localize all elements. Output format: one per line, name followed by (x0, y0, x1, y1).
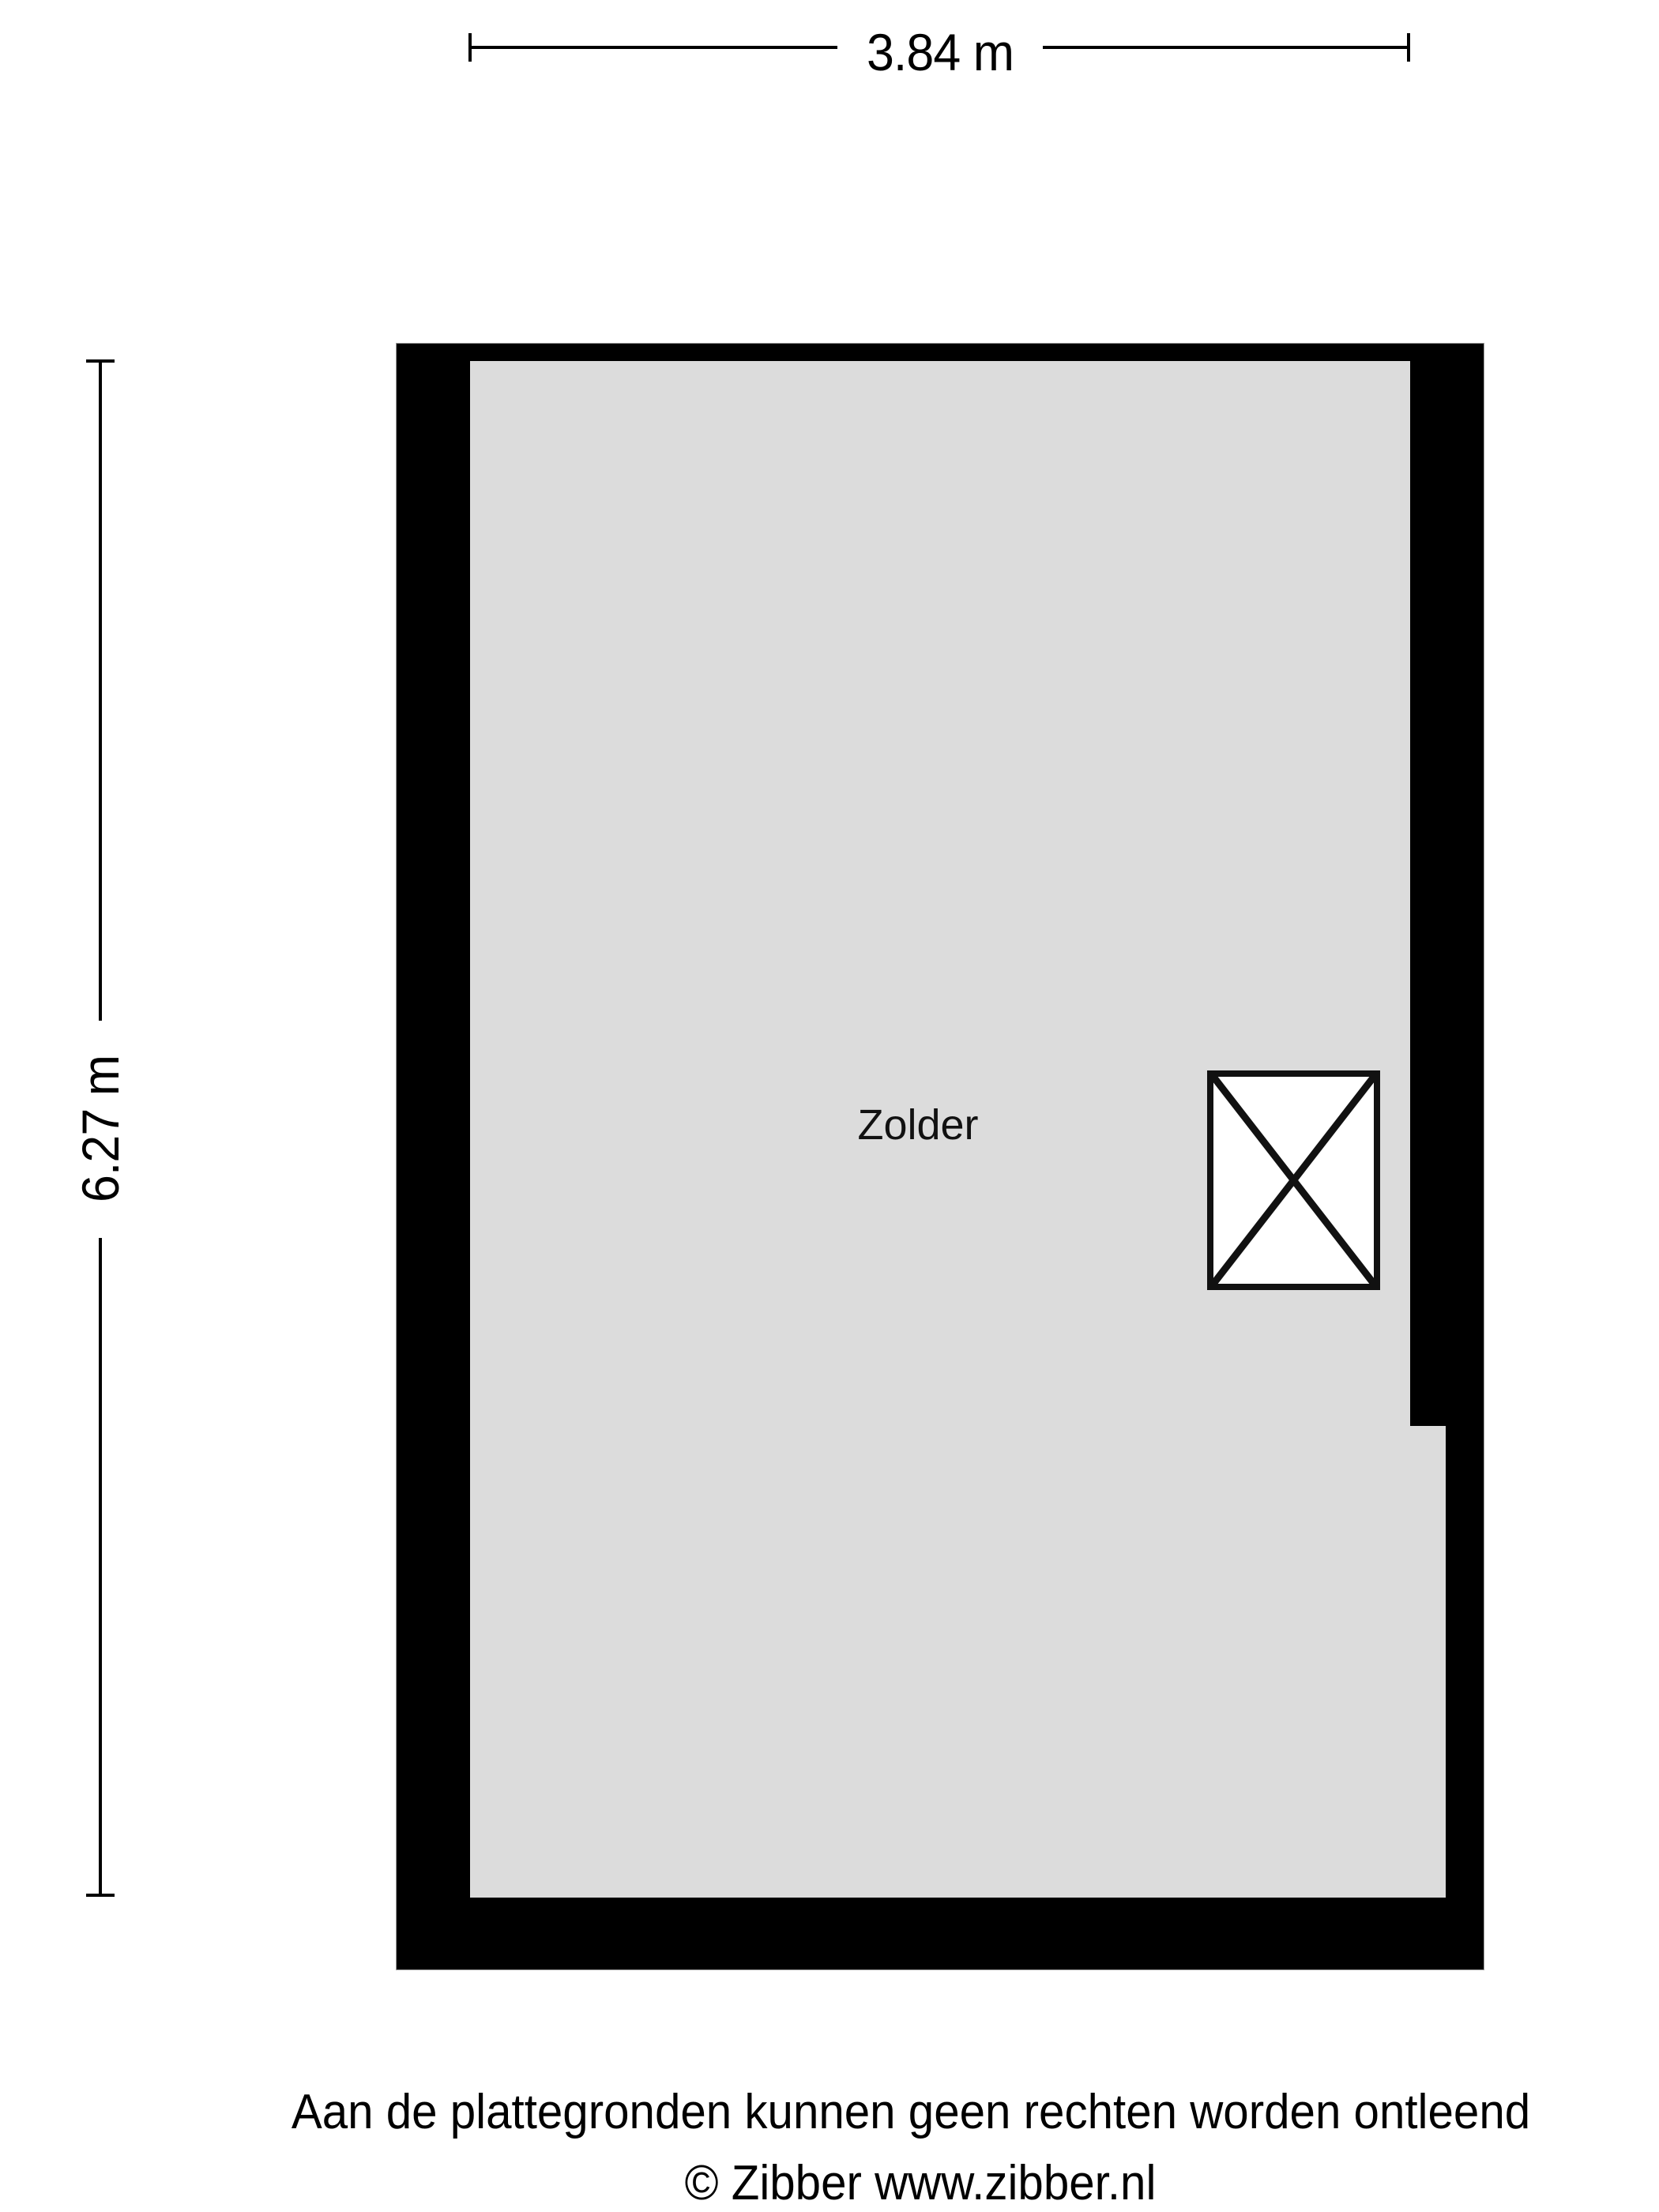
room-label: Zolder (857, 1104, 978, 1146)
height-dimension-line-bottom (99, 1238, 102, 1897)
width-dimension-line-right (1043, 46, 1410, 49)
width-dimension-line-left (470, 46, 837, 49)
width-dimension-label: 3.84 m (867, 26, 1014, 78)
height-dimension-bottom-tick (86, 1894, 115, 1897)
height-dimension-label: 6.27 m (74, 1055, 126, 1202)
width-dimension-right-tick (1407, 33, 1410, 62)
copyright-text: © Zibber www.zibber.nl (685, 2159, 1157, 2208)
disclaimer-text: Aan de plattegronden kunnen geen rechten… (292, 2088, 1530, 2137)
attic-floor-step-recess (1410, 1426, 1446, 1898)
height-dimension-line-top (99, 361, 102, 1021)
crossed-box-void-icon (1207, 1070, 1380, 1290)
void-cross-lines (1213, 1077, 1374, 1284)
